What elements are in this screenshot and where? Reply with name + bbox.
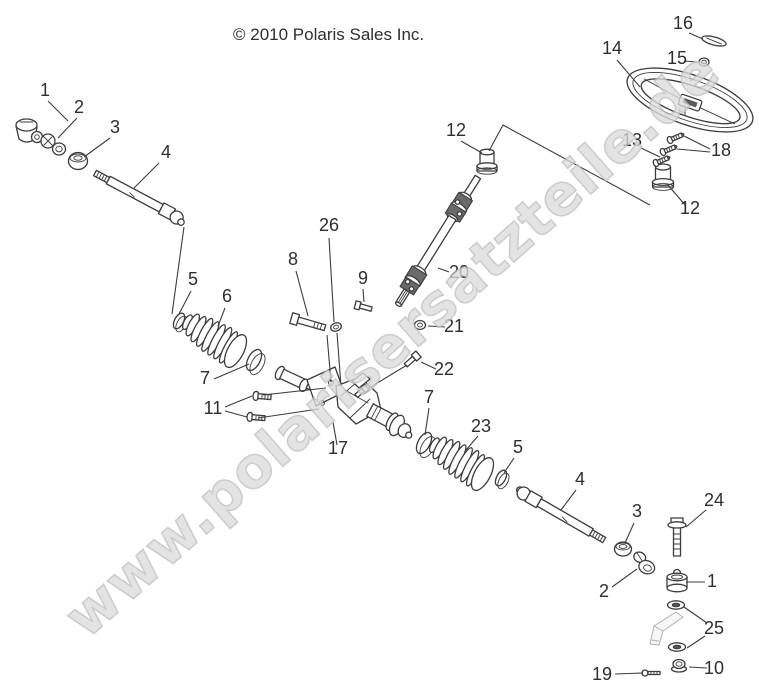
part-16-emblem (701, 34, 727, 48)
part-25-washers (650, 601, 686, 651)
callout-2-right: 2 (599, 581, 609, 601)
part-24-bolt (668, 518, 686, 556)
callout-12-right: 12 (680, 198, 700, 218)
callout-6: 6 (222, 286, 232, 306)
callout-25: 25 (704, 618, 724, 638)
callout-10: 10 (704, 658, 724, 678)
leader-lines (48, 33, 710, 674)
callout-5-left: 5 (188, 269, 198, 289)
callout-3-left: 3 (110, 117, 120, 137)
callout-13: 13 (622, 130, 642, 150)
callout-1-left: 1 (40, 80, 50, 100)
part-4-tie-rod-right (513, 484, 607, 546)
callout-16: 16 (673, 13, 693, 33)
callout-4-left: 4 (161, 142, 171, 162)
callout-15: 15 (667, 48, 687, 68)
callout-14: 14 (602, 38, 622, 58)
parts-diagram-page: 1 2 3 4 5 6 7 8 9 11 12 13 14 15 16 17 1… (0, 0, 759, 696)
copyright-text: © 2010 Polaris Sales Inc. (233, 25, 424, 44)
part-3-nut-right (615, 542, 632, 556)
part-7-clamp-left (242, 347, 269, 377)
part-15-nut (699, 58, 709, 66)
callout-20: 20 (449, 262, 469, 282)
callout-12-left: 12 (446, 120, 466, 140)
callout-23: 23 (471, 416, 491, 436)
part-26-washer (329, 321, 342, 332)
exploded-parts-diagram: 1 2 3 4 5 6 7 8 9 11 12 13 14 15 16 17 1… (0, 0, 759, 696)
callout-5-right: 5 (513, 437, 523, 457)
part-1-tie-rod-end-right (667, 570, 687, 592)
callout-4-right: 4 (575, 469, 585, 489)
part-17-rack-housing (307, 367, 418, 444)
part-20-steering-shaft (390, 172, 485, 310)
callout-26: 26 (319, 215, 339, 235)
callout-18: 18 (711, 140, 731, 160)
part-9-bolt (354, 301, 372, 313)
part-2-stud-left (41, 134, 66, 155)
part-10-nut (672, 660, 687, 673)
callout-3-right: 3 (632, 501, 642, 521)
callout-21: 21 (444, 316, 464, 336)
callout-7-left: 7 (200, 368, 210, 388)
callout-19: 19 (592, 664, 612, 684)
callout-8: 8 (288, 249, 298, 269)
callout-1-right: 1 (707, 571, 717, 591)
callout-11: 11 (204, 398, 223, 418)
part-4-tie-rod-left (91, 168, 188, 228)
callout-9: 9 (358, 268, 368, 288)
callout-labels: 1 2 3 4 5 6 7 8 9 11 12 13 14 15 16 17 1… (40, 13, 731, 684)
callout-7-right: 7 (424, 387, 434, 407)
part-19-pin (642, 670, 660, 676)
part-23-boot (422, 430, 499, 494)
part-1-tie-rod-end-left (16, 119, 43, 143)
part-21-nut (415, 321, 426, 330)
part-3-nut-left (69, 153, 88, 170)
callout-2-left: 2 (74, 97, 84, 117)
part-5-clamp-right (492, 468, 512, 490)
callout-17: 17 (328, 438, 348, 458)
part-12-bushing-left (477, 149, 497, 174)
part-12-bushing-right (653, 164, 674, 190)
callout-22: 22 (434, 359, 454, 379)
part-2-stud-right (629, 550, 658, 576)
callout-24: 24 (704, 490, 724, 510)
